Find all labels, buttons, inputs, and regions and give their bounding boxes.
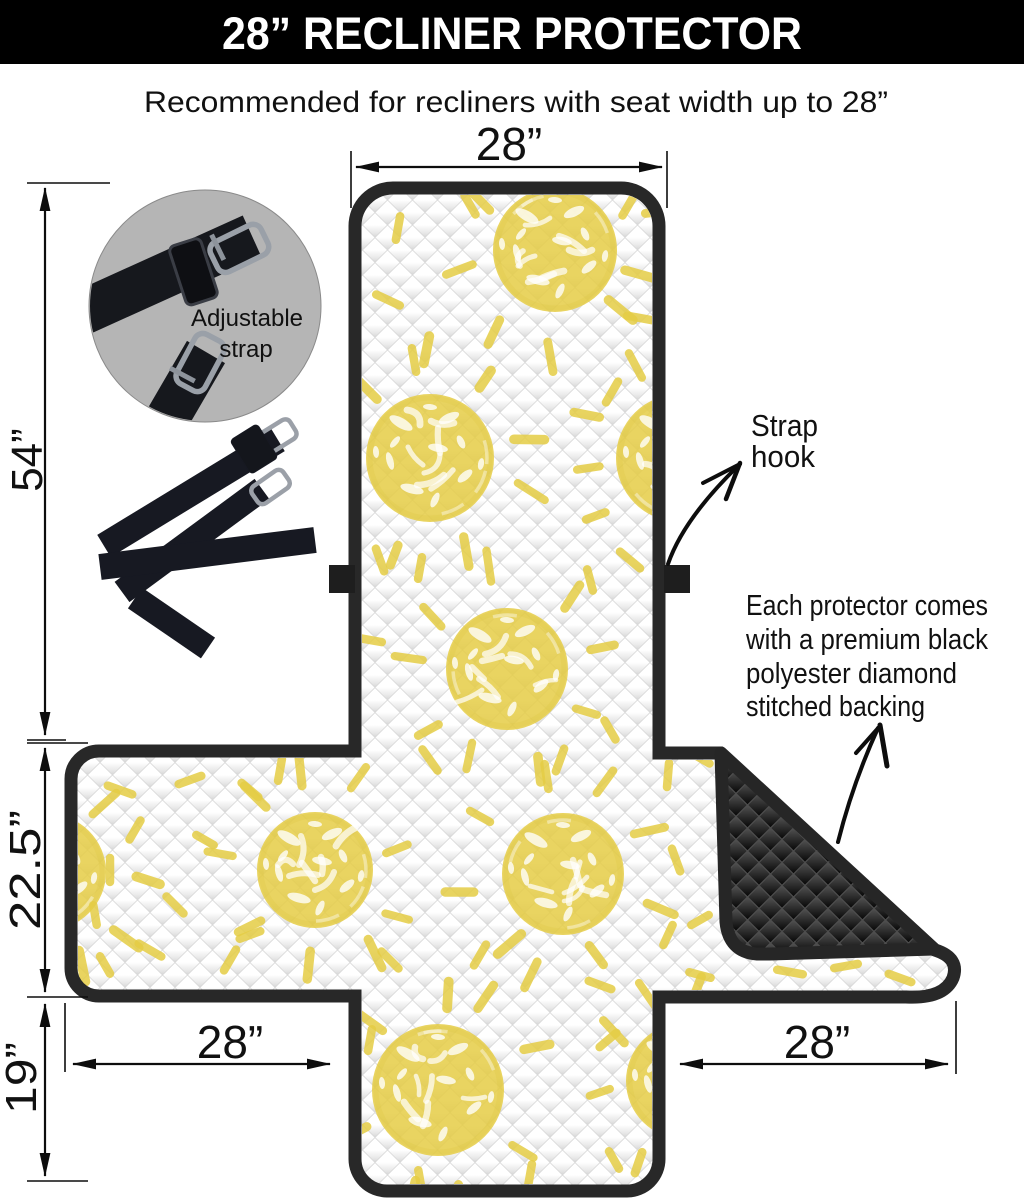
svg-text:28” RECLINER PROTECTOR: 28” RECLINER PROTECTOR	[222, 8, 802, 59]
svg-text:22.5”: 22.5”	[1, 810, 50, 930]
svg-text:polyester diamond: polyester diamond	[746, 658, 957, 690]
svg-text:54”: 54”	[3, 428, 52, 492]
svg-text:strap: strap	[219, 336, 272, 363]
svg-text:28”: 28”	[197, 1016, 263, 1068]
svg-text:Recommended for recliners with: Recommended for recliners with seat widt…	[144, 86, 888, 119]
svg-text:Each protector comes: Each protector comes	[746, 590, 988, 622]
svg-text:Adjustable: Adjustable	[191, 305, 303, 332]
svg-text:with a premium black: with a premium black	[745, 624, 988, 656]
svg-text:hook: hook	[751, 439, 815, 474]
svg-text:Strap: Strap	[751, 408, 818, 443]
svg-text:28”: 28”	[476, 118, 542, 170]
svg-text:19”: 19”	[0, 1042, 46, 1114]
svg-text:stitched backing: stitched backing	[746, 691, 925, 723]
svg-text:28”: 28”	[784, 1016, 850, 1068]
